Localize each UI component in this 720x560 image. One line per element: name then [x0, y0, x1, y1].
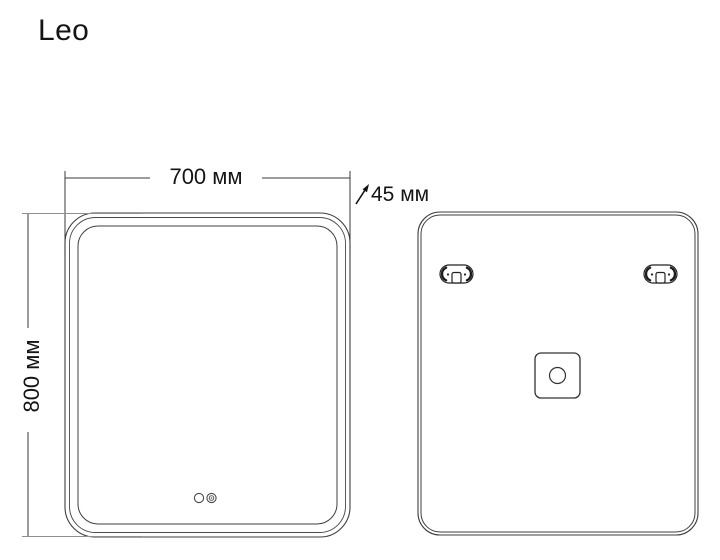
mirror-outer-edge	[65, 213, 350, 537]
page: { "title": "Leo", "dimensions": { "width…	[0, 0, 720, 560]
depth-dimension-label: 45 мм	[371, 184, 429, 205]
technical-drawing-canvas	[0, 0, 720, 560]
height-dimension-label: 800 мм	[21, 339, 43, 412]
back-view	[418, 212, 698, 535]
product-title: Leo	[38, 16, 89, 46]
mounting-bracket-icon	[644, 265, 677, 283]
diagonal-arrow-icon	[356, 184, 369, 204]
front-view	[65, 213, 350, 537]
mounting-bracket-icon	[440, 265, 473, 283]
junction-box-icon	[535, 353, 580, 398]
width-dimension-label: 700 мм	[148, 166, 264, 188]
